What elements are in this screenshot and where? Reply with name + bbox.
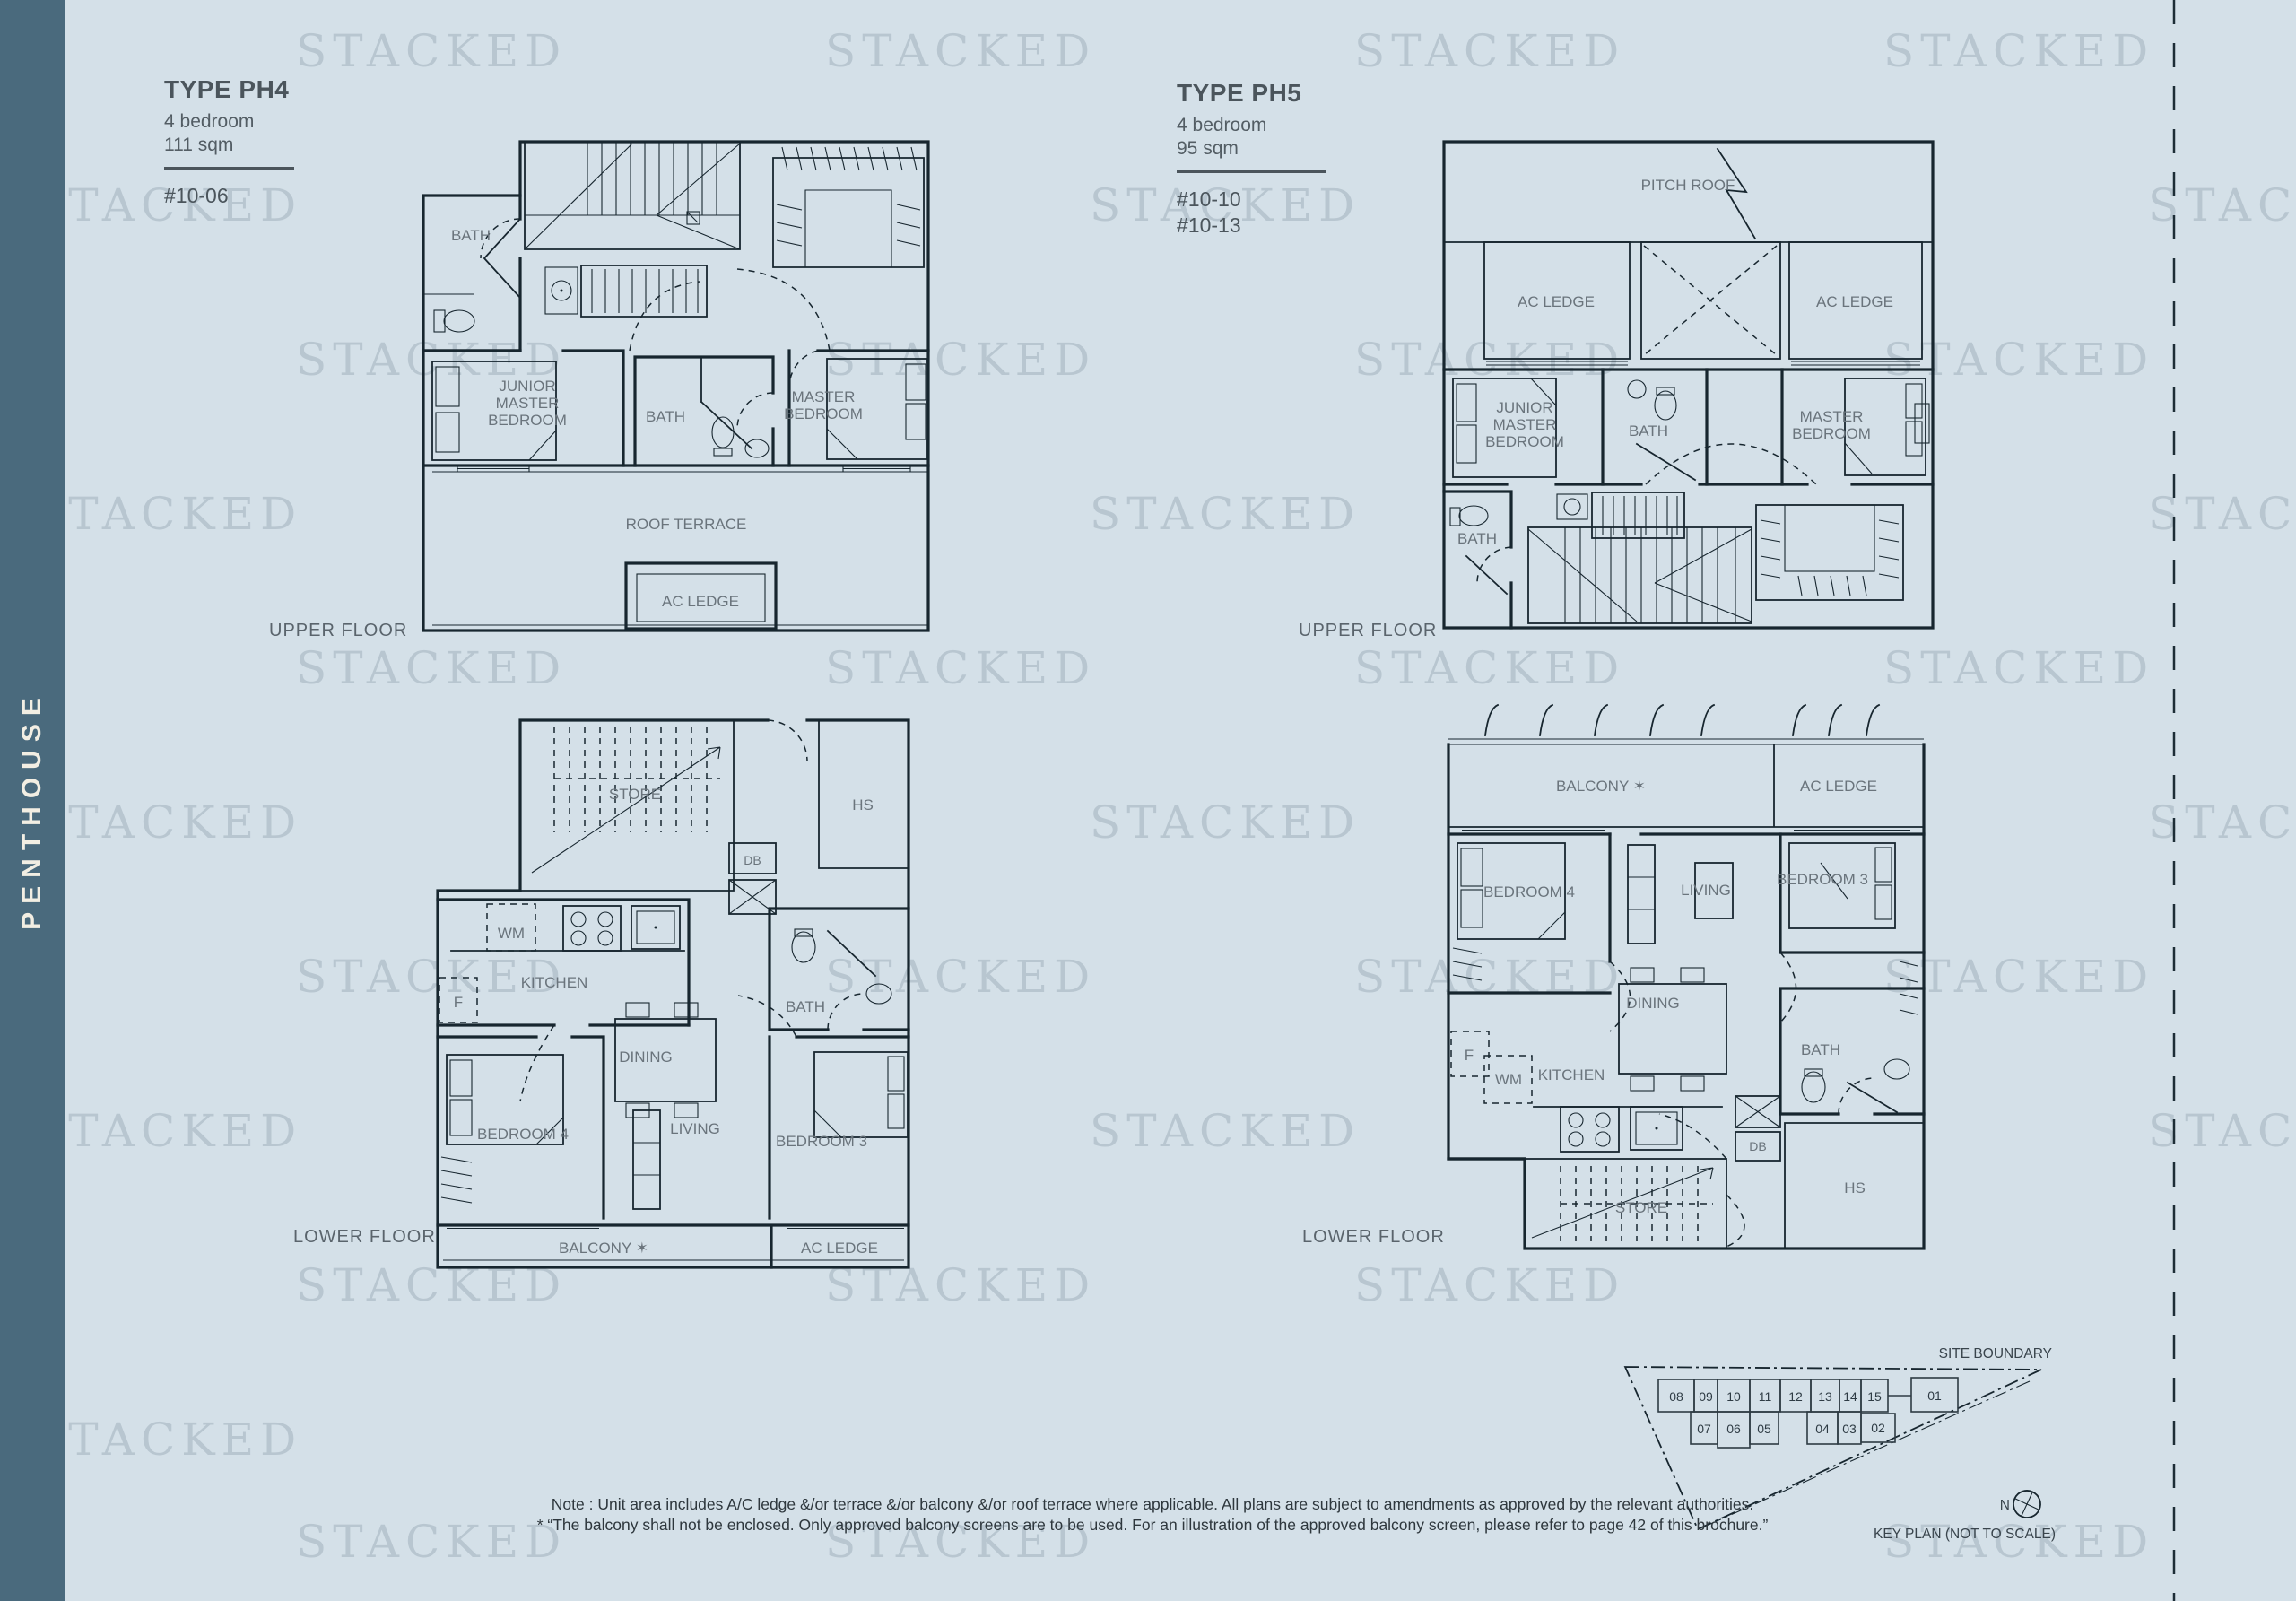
- ph4-upper-floor-plan: BATH JUNIOR MASTER BEDROOM BATH MASTER B…: [422, 133, 933, 637]
- ph5-lower-outer-wall: [1448, 744, 1924, 1249]
- unit-03: 03: [1842, 1422, 1857, 1436]
- ph4-header-divider: [164, 167, 294, 170]
- room-label-dining: DINING: [619, 1048, 673, 1066]
- room-label-roof-terrace: ROOF TERRACE: [626, 516, 747, 533]
- room-label-ph5-junior-3: BEDROOM: [1485, 433, 1564, 450]
- ph4-header: TYPE PH4 4 bedroom 111 sqm #10-06: [164, 75, 294, 210]
- unit-06-highlighted: 06: [1726, 1422, 1741, 1436]
- ph5-upper-floor-plan: PITCH ROOF AC LEDGE AC LEDGE JUNIOR MAST…: [1431, 135, 1955, 637]
- ph5-stack-number-2: #10-13: [1177, 213, 1326, 238]
- unit-04: 04: [1815, 1422, 1830, 1436]
- unit-01: 01: [1927, 1388, 1942, 1403]
- room-label-ph5-hs: HS: [1844, 1179, 1865, 1196]
- room-label-junior-2: MASTER: [496, 395, 560, 412]
- north-label: N: [2000, 1498, 2010, 1513]
- ph5-header: TYPE PH5 4 bedroom 95 sqm #10-10 #10-13: [1177, 79, 1326, 239]
- penthouse-sidebar: PENTHOUSE: [0, 0, 65, 1601]
- sidebar-section-label: PENTHOUSE: [17, 690, 48, 930]
- ph5-lower-dining: [1619, 968, 1726, 1091]
- room-label-ph5-bath-bottom: BATH: [1457, 530, 1497, 547]
- room-label-junior-1: JUNIOR: [499, 378, 555, 395]
- room-label-ph5-bedroom3: BEDROOM 3: [1777, 871, 1868, 888]
- note-line-2: * “The balcony shall not be enclosed. On…: [480, 1515, 1825, 1536]
- keyplan-caption: KEY PLAN (NOT TO SCALE): [1874, 1527, 2056, 1542]
- room-label-ph5-master-2: BEDROOM: [1792, 425, 1871, 442]
- unit-15: 15: [1867, 1389, 1882, 1404]
- ph4-upper-closet: [545, 265, 707, 317]
- page-divider-dashed-line: [2170, 0, 2178, 1601]
- ph5-area: 95 sqm: [1177, 138, 1326, 160]
- ph5-upper-stairs: [1528, 527, 1752, 623]
- disclaimer-note: Note : Unit area includes A/C ledge &/or…: [480, 1494, 1825, 1536]
- watermark: STACKED: [1090, 796, 1361, 848]
- ph4-area: 111 sqm: [164, 135, 294, 156]
- ph4-lower-floor-plan: STORE HS DB WM KITCHEN F BATH DINING: [420, 716, 911, 1272]
- ph5-stack-number-1: #10-10: [1177, 187, 1326, 212]
- ph5-lower-kitchen: [1448, 1031, 1722, 1159]
- pitch-roof-break-line: [1718, 149, 1755, 239]
- room-label-db: DB: [744, 853, 761, 867]
- unit-08: 08: [1669, 1389, 1683, 1404]
- ph4-lower-living: [633, 1110, 660, 1209]
- watermark: STACKED: [1883, 642, 2154, 694]
- keyplan-unit-row1: 08 09 10 11 12 13 14 15 01: [1658, 1378, 1958, 1412]
- room-label-hs: HS: [852, 796, 874, 814]
- room-label-ph5-junior-2: MASTER: [1493, 416, 1557, 433]
- room-label-ph5-store: STORE: [1615, 1199, 1667, 1216]
- unit-05: 05: [1757, 1422, 1771, 1436]
- room-label-ph5-db: DB: [1749, 1139, 1766, 1153]
- room-label-junior-3: BEDROOM: [488, 412, 567, 429]
- watermark: STACKED: [296, 642, 567, 694]
- ph5-upper-floor-label: UPPER FLOOR: [1299, 621, 1437, 641]
- room-label-kitchen: KITCHEN: [521, 974, 588, 991]
- watermark: STACKED: [1354, 1259, 1625, 1311]
- unit-07: 07: [1697, 1422, 1711, 1436]
- unit-12: 12: [1788, 1389, 1803, 1404]
- ph5-upper-wardrobe: [1756, 505, 1903, 600]
- ph5-header-divider: [1177, 170, 1326, 173]
- room-label-ph5-bath-top: BATH: [1629, 422, 1668, 439]
- room-label-bath-top: BATH: [451, 227, 491, 244]
- room-label-ph4-acledge: AC LEDGE: [801, 1240, 878, 1257]
- room-label-wm: WM: [498, 925, 525, 942]
- ph4-upper-floor-label: UPPER FLOOR: [269, 621, 407, 641]
- watermark: STACKED: [31, 1105, 302, 1157]
- room-label-bedroom4: BEDROOM 4: [477, 1126, 569, 1143]
- ph5-lower-bedroom3: [1780, 834, 1924, 1022]
- room-label-ph5-bedroom4: BEDROOM 4: [1483, 883, 1575, 901]
- ph5-lower-floor-plan: BALCONY ✶ AC LEDGE BEDROOM 4 LIVING BEDR…: [1426, 692, 1942, 1257]
- room-label-ph5-balcony: BALCONY ✶: [1556, 778, 1646, 795]
- room-label-ph5-junior-1: JUNIOR: [1496, 399, 1552, 416]
- ph5-lower-floor-label: LOWER FLOOR: [1302, 1227, 1445, 1248]
- room-label-balcony: BALCONY ✶: [559, 1240, 648, 1257]
- room-label-ph5-bath: BATH: [1801, 1041, 1840, 1058]
- site-boundary-label: SITE BOUNDARY: [1939, 1346, 2052, 1362]
- unit-14: 14: [1843, 1389, 1857, 1404]
- ph5-title: TYPE PH5: [1177, 79, 1326, 108]
- watermark: STACKED: [1090, 488, 1361, 540]
- ph5-lower-window-arcs: [1448, 705, 1924, 744]
- room-label-ph5-acledge: AC LEDGE: [1800, 778, 1877, 795]
- room-label-ph5-living: LIVING: [1681, 882, 1731, 899]
- watermark: STACKED: [1090, 1105, 1361, 1157]
- room-label-ac-ledge-right: AC LEDGE: [1816, 293, 1893, 310]
- note-line-1: Note : Unit area includes A/C ledge &/or…: [480, 1494, 1825, 1515]
- room-label-ph5-f: F: [1465, 1047, 1474, 1064]
- ph5-lower-bedroom4: [1448, 834, 1631, 1031]
- watermark: STACKED: [31, 488, 302, 540]
- ph4-upper-bath-top: [423, 196, 700, 351]
- room-label-pitch-roof: PITCH ROOF: [1641, 177, 1735, 194]
- room-label-ph4-bath: BATH: [786, 998, 825, 1015]
- room-label-living: LIVING: [670, 1120, 720, 1137]
- ph5-lower-stairs-store: [1525, 1114, 1744, 1249]
- room-label-ph5-kitchen: KITCHEN: [1538, 1066, 1605, 1083]
- ph5-bedrooms: 4 bedroom: [1177, 115, 1326, 136]
- unit-10-highlighted: 10: [1726, 1389, 1741, 1404]
- watermark: STACKED: [1354, 642, 1625, 694]
- watermark: STACKED: [825, 642, 1096, 694]
- watermark: STACKED: [296, 25, 567, 77]
- room-label-ph5-dining: DINING: [1626, 995, 1680, 1012]
- watermark: STACKED: [31, 796, 302, 848]
- ph5-upper-closet: [1557, 492, 1684, 538]
- room-label-ac-ledge: AC LEDGE: [662, 593, 739, 610]
- ph5-upper-door-arc: [1646, 444, 1816, 484]
- ph4-lower-stairs-store: [520, 720, 734, 891]
- north-compass-icon: [2009, 1486, 2045, 1522]
- watermark: STACKED: [31, 1414, 302, 1466]
- unit-02: 02: [1871, 1421, 1885, 1435]
- watermark: STACKED: [825, 25, 1096, 77]
- room-label-ph5-master-1: MASTER: [1800, 408, 1864, 425]
- ph4-title: TYPE PH4: [164, 75, 294, 104]
- keyplan-unit-row2: 07 06 05 04 03 02: [1691, 1412, 1895, 1448]
- room-label-bath-mid: BATH: [646, 408, 685, 425]
- unit-13-highlighted: 13: [1818, 1389, 1832, 1404]
- room-label-ph5-wm: WM: [1495, 1071, 1522, 1088]
- ph4-upper-wardrobe: [773, 147, 924, 267]
- watermark: STACKED: [1354, 25, 1625, 77]
- unit-11: 11: [1759, 1389, 1772, 1404]
- ph4-bedrooms: 4 bedroom: [164, 111, 294, 133]
- unit-09: 09: [1699, 1389, 1713, 1404]
- room-label-bedroom3: BEDROOM 3: [776, 1133, 867, 1150]
- ph4-lower-hs: [819, 720, 909, 868]
- ph4-lower-floor-label: LOWER FLOOR: [293, 1227, 436, 1248]
- room-label-f: F: [454, 994, 463, 1011]
- room-label-store: STORE: [609, 786, 661, 803]
- room-label-ac-ledge-left: AC LEDGE: [1518, 293, 1595, 310]
- room-label-master-1: MASTER: [792, 388, 856, 405]
- ph4-stack-number: #10-06: [164, 184, 294, 208]
- ph5-upper-bath-bottom: [1444, 492, 1511, 628]
- watermark: STACKED: [1883, 25, 2154, 77]
- ph4-upper-stairs: [525, 142, 740, 249]
- room-label-master-2: BEDROOM: [784, 405, 863, 422]
